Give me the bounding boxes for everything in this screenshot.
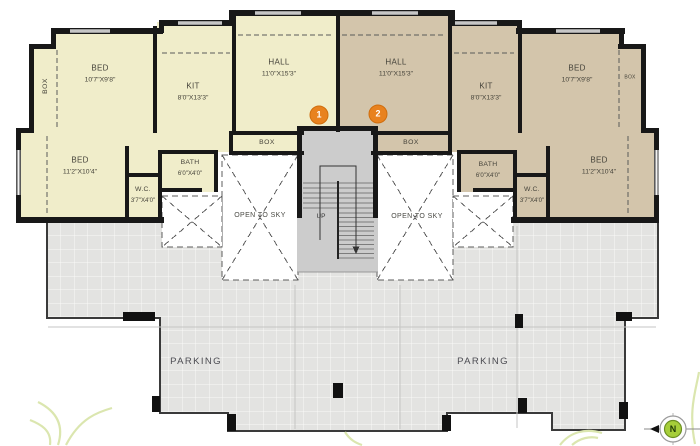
floor-plan-drawing [0, 0, 700, 446]
compass-north-label: N [670, 424, 677, 434]
unit-1-marker[interactable]: 1 [310, 106, 329, 125]
staircase [297, 126, 378, 272]
unit-2-marker[interactable]: 2 [369, 105, 388, 124]
floor-plan: BOX BED10'7"X9'8" KIT8'0"X13'3" HALL11'0… [0, 0, 700, 446]
